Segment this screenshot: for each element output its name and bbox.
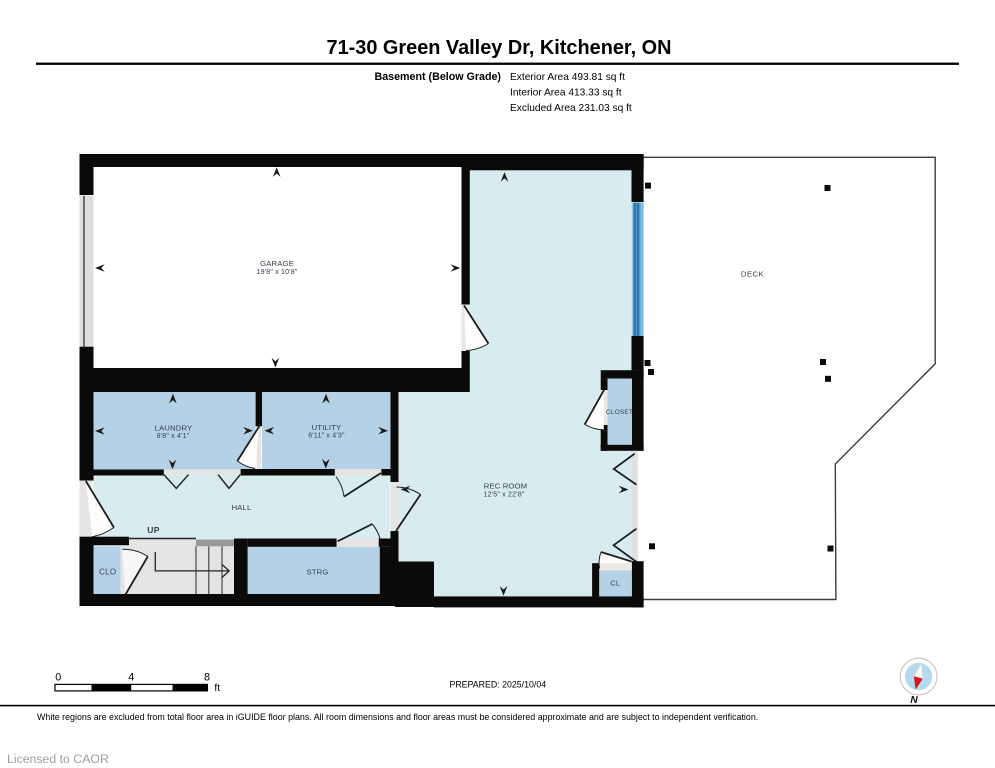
svg-text:8: 8 — [204, 672, 210, 684]
svg-text:HALL: HALL — [232, 503, 252, 512]
svg-text:DECK: DECK — [741, 269, 765, 278]
svg-text:UTILITY: UTILITY — [312, 423, 342, 432]
svg-text:0: 0 — [55, 672, 61, 684]
svg-text:19'8" x 10'8": 19'8" x 10'8" — [257, 269, 298, 276]
svg-text:8'8" x 4'1": 8'8" x 4'1" — [157, 433, 190, 440]
svg-text:6'11" x 4'3": 6'11" x 4'3" — [308, 432, 345, 439]
svg-text:LAUNDRY: LAUNDRY — [155, 423, 193, 432]
svg-text:4: 4 — [128, 672, 134, 684]
svg-text:STRG: STRG — [307, 568, 329, 577]
svg-text:12'5" x 22'8": 12'5" x 22'8" — [484, 491, 525, 498]
svg-text:Licensed to CAOR: Licensed to CAOR — [7, 752, 109, 766]
svg-text:ft: ft — [214, 683, 220, 694]
svg-text:Exterior Area 493.81 sq ft: Exterior Area 493.81 sq ft — [510, 72, 625, 83]
svg-text:GARAGE: GARAGE — [260, 259, 294, 268]
svg-text:CLOSET: CLOSET — [606, 409, 633, 416]
svg-text:Basement (Below Grade): Basement (Below Grade) — [374, 71, 501, 83]
svg-text:UP: UP — [147, 525, 159, 535]
svg-text:71-30 Green Valley Dr, Kitchen: 71-30 Green Valley Dr, Kitchener, ON — [327, 37, 672, 59]
svg-text:PREPARED: 2025/10/04: PREPARED: 2025/10/04 — [449, 679, 546, 689]
svg-text:Excluded Area 231.03 sq ft: Excluded Area 231.03 sq ft — [510, 103, 632, 114]
svg-text:CL: CL — [610, 579, 620, 588]
svg-text:REC ROOM: REC ROOM — [484, 482, 527, 491]
svg-text:White regions are excluded fro: White regions are excluded from total fl… — [37, 712, 758, 722]
svg-text:CLO: CLO — [99, 568, 116, 577]
svg-text:Interior Area 413.33 sq ft: Interior Area 413.33 sq ft — [510, 88, 622, 99]
svg-text:N: N — [910, 695, 918, 706]
